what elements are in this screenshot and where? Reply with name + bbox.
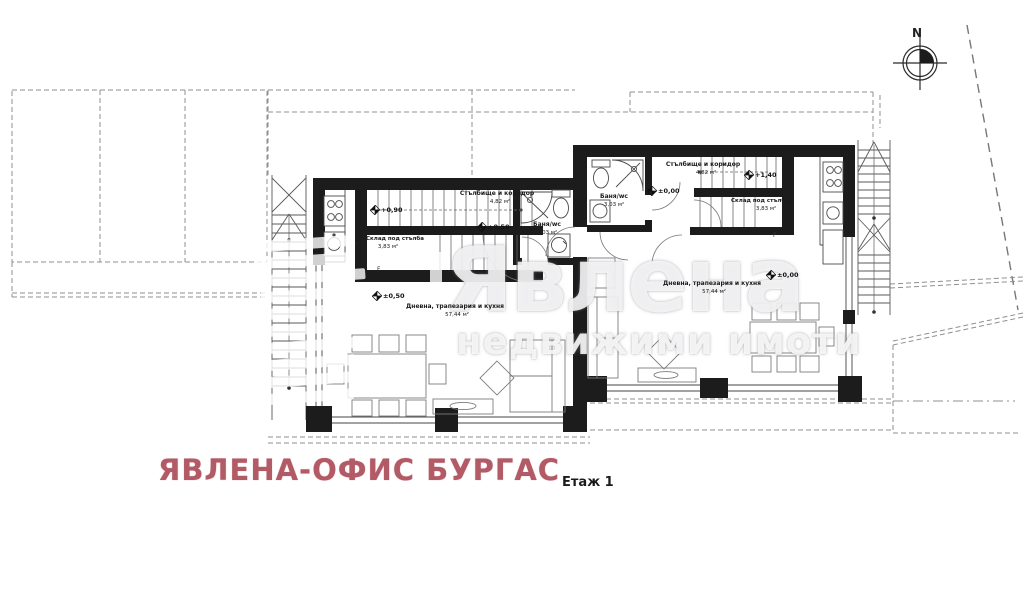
- watermark-tagline: недвижими имоти: [456, 320, 862, 363]
- right-fridge-label: F: [773, 233, 776, 240]
- benchmark-icon: [766, 270, 776, 280]
- left-storage-area: 3,83 м²: [378, 244, 398, 250]
- left-level-hall: ±0,50: [477, 222, 509, 232]
- right-bath-name: Баня/wc: [600, 194, 628, 201]
- left-bath-name: Баня/wc: [533, 222, 561, 229]
- left-living-name: Дневна, трапезария и кухня: [406, 304, 504, 311]
- floorplan-page: Явлена недвижими имоти Стълбище и коридо…: [0, 0, 1024, 596]
- north-arrow-icon: [893, 36, 947, 90]
- benchmark-icon: [744, 170, 754, 180]
- left-living-area: 57,44 м²: [445, 312, 469, 318]
- right-stair-hall-name: Стълбище и коридор: [666, 162, 740, 169]
- floor-label: Етаж 1: [562, 475, 614, 490]
- right-living-name: Дневна, трапезария и кухня: [663, 281, 761, 288]
- left-fridge-label: F: [377, 267, 380, 274]
- right-storage-area: 3,83 м²: [756, 206, 776, 212]
- bathroom-right: [590, 160, 643, 222]
- right-level-stairs: +1,40: [744, 170, 776, 180]
- kitchen-left: [324, 190, 345, 262]
- right-stair-hall-area: 4,82 м²: [696, 170, 716, 176]
- left-level-living: ±0,50: [372, 291, 404, 301]
- right-living-area: 57,44 м²: [702, 289, 726, 295]
- left-bath-area: 3,03 м²: [537, 230, 557, 236]
- left-stair-hall-area: 4,82 м²: [490, 199, 510, 205]
- kitchen-right: [820, 157, 843, 264]
- right-bath-area: 3,03 м²: [604, 202, 624, 208]
- benchmark-icon: [477, 222, 487, 232]
- right-level-hall: ±0,00: [647, 186, 679, 196]
- watermark-logo-stripes: [245, 234, 374, 406]
- left-storage-name: Склад под стълба: [366, 236, 424, 242]
- left-stair-hall-name: Стълбище и коридор: [460, 191, 534, 198]
- agency-office-title: ЯВЛЕНА-ОФИС БУРГАС: [158, 453, 560, 487]
- exterior-stairs-east: [858, 140, 890, 315]
- benchmark-icon: [372, 291, 382, 301]
- left-level-entry: +0,90: [370, 205, 402, 215]
- north-label: N: [912, 26, 922, 40]
- benchmark-icon: [647, 186, 657, 196]
- benchmark-icon: [370, 205, 380, 215]
- right-level-living: ±0,00: [766, 270, 798, 280]
- right-storage-name: Склад под стълба: [731, 198, 789, 204]
